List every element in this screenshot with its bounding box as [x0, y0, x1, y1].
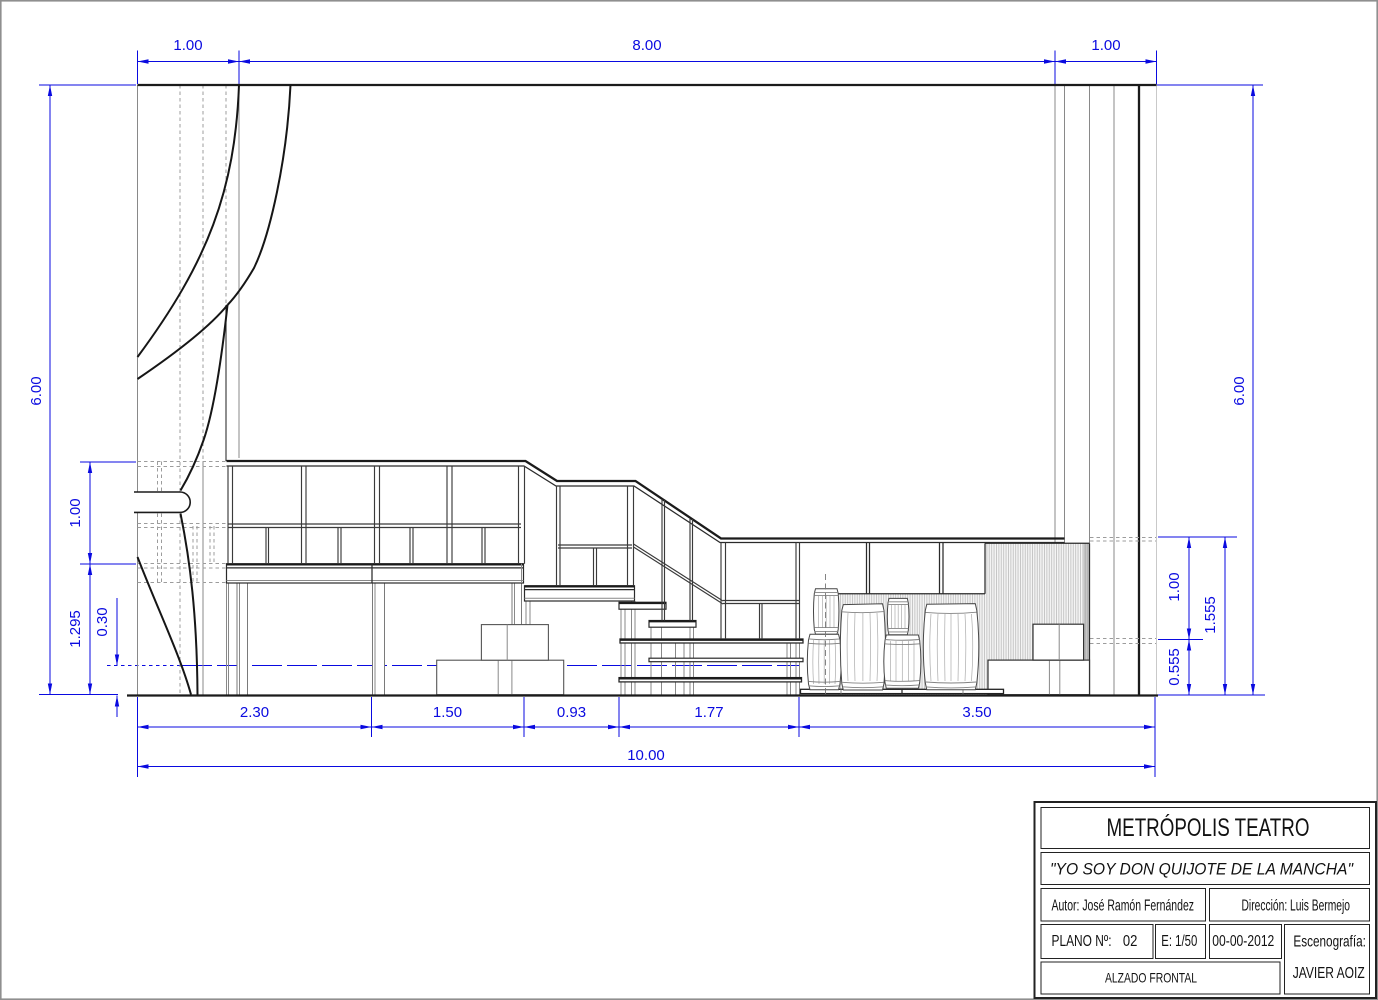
svg-text:1.00: 1.00 [173, 37, 202, 54]
svg-text:6.00: 6.00 [1231, 376, 1248, 405]
svg-text:PLANO Nº:: PLANO Nº: [1052, 933, 1112, 950]
svg-text:6.00: 6.00 [28, 376, 45, 405]
svg-text:Dirección: Luis Bermejo: Dirección: Luis Bermejo [1242, 898, 1351, 915]
svg-text:Escenografía:: Escenografía: [1293, 934, 1366, 951]
svg-text:1.295: 1.295 [67, 610, 84, 648]
svg-text:Autor: José Ramón Fernández: Autor: José Ramón Fernández [1052, 898, 1195, 915]
svg-text:"YO SOY DON QUIJOTE DE LA MANC: "YO SOY DON QUIJOTE DE LA MANCHA" [1050, 860, 1354, 879]
svg-text:0.555: 0.555 [1166, 648, 1183, 686]
svg-text:0.93: 0.93 [557, 704, 586, 721]
svg-text:1.00: 1.00 [1091, 37, 1120, 54]
svg-text:3.50: 3.50 [962, 704, 991, 721]
svg-text:1.555: 1.555 [1202, 596, 1219, 634]
svg-text:0.30: 0.30 [94, 607, 111, 636]
svg-text:10.00: 10.00 [627, 747, 665, 764]
svg-text:1.77: 1.77 [694, 704, 723, 721]
svg-text:02: 02 [1123, 933, 1138, 950]
svg-text:1.50: 1.50 [433, 704, 462, 721]
svg-text:2.30: 2.30 [240, 704, 269, 721]
svg-text:1.00: 1.00 [67, 498, 84, 527]
svg-text:1.00: 1.00 [1166, 572, 1183, 601]
svg-text:E: 1/50: E: 1/50 [1161, 933, 1197, 950]
svg-text:00-00-2012: 00-00-2012 [1212, 933, 1274, 950]
svg-text:ALZADO FRONTAL: ALZADO FRONTAL [1105, 970, 1197, 986]
svg-text:8.00: 8.00 [632, 37, 661, 54]
svg-text:JAVIER AOIZ: JAVIER AOIZ [1293, 965, 1365, 982]
svg-text:METRÓPOLIS TEATRO: METRÓPOLIS TEATRO [1107, 813, 1310, 842]
